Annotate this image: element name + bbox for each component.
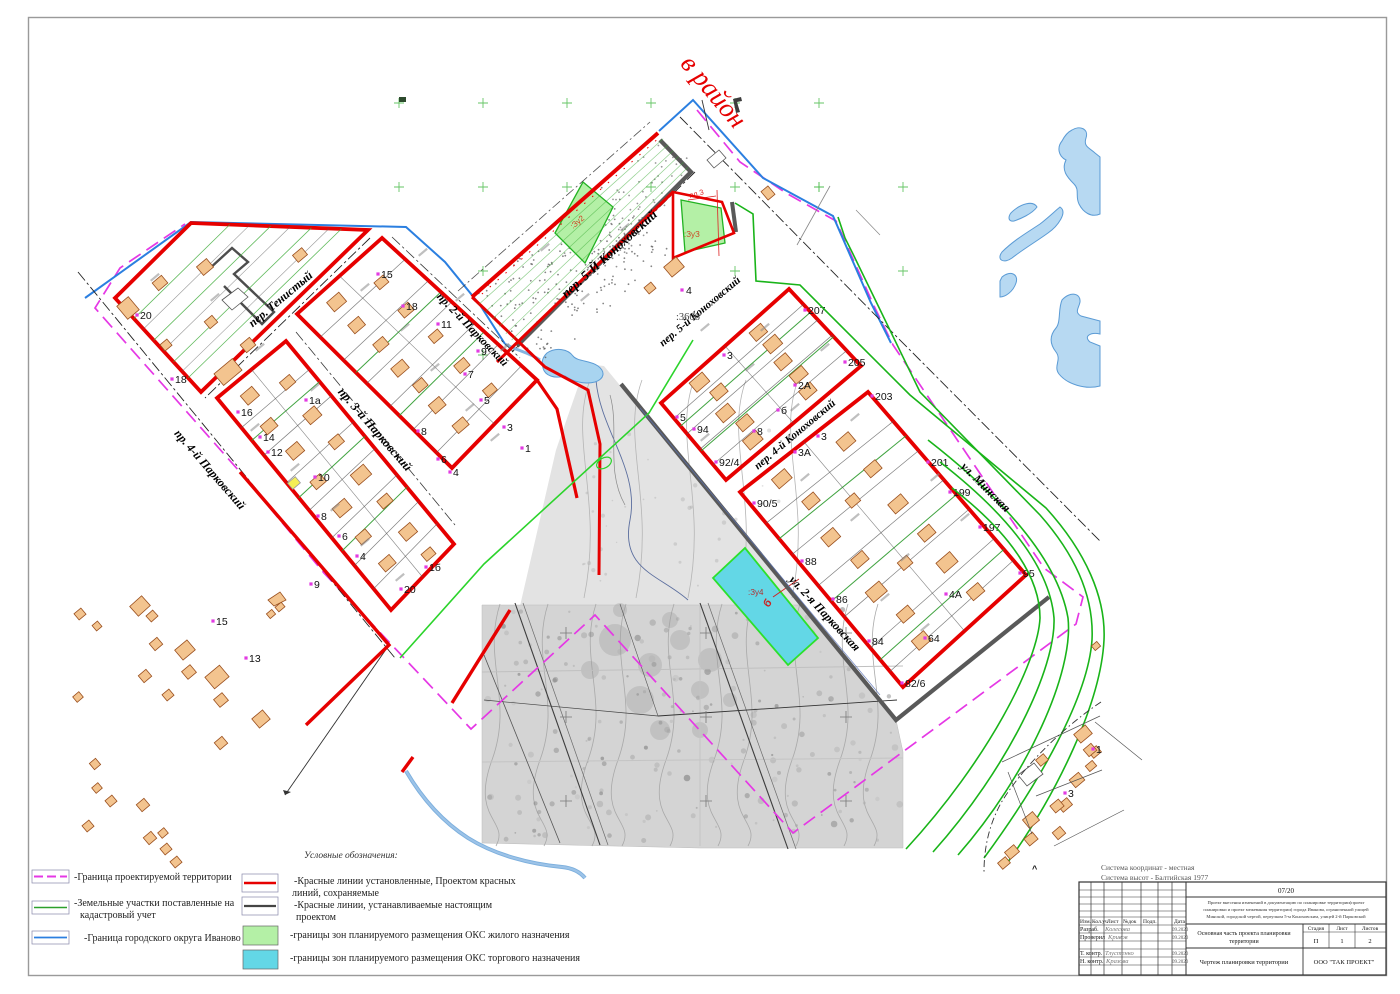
svg-text:8: 8: [321, 511, 327, 523]
svg-text:-Граница проектируемой террито: -Граница проектируемой территории: [74, 872, 232, 883]
svg-text:Стадия: Стадия: [1308, 926, 1325, 932]
svg-text:1а: 1а: [309, 395, 321, 407]
svg-text:Разраб.: Разраб.: [1080, 926, 1099, 933]
svg-text:13: 13: [249, 653, 261, 665]
svg-text:4: 4: [360, 551, 366, 563]
svg-text:Условные обозначения:: Условные обозначения:: [304, 850, 398, 861]
svg-text:Т. контр.: Т. контр.: [1080, 951, 1103, 957]
svg-text:1: 1: [1340, 938, 1343, 945]
svg-text:Чертеж планировки территории: Чертеж планировки территории: [1200, 959, 1289, 966]
svg-text:15: 15: [216, 616, 228, 628]
svg-text:3А: 3А: [798, 447, 811, 459]
svg-text:20: 20: [404, 584, 416, 596]
svg-text:3: 3: [727, 350, 733, 362]
svg-text:-Граница городского округа Ива: -Граница городского округа Иваново: [84, 933, 241, 944]
svg-text:20: 20: [140, 310, 152, 322]
svg-text:Кол.уч: Кол.уч: [1092, 919, 1108, 925]
svg-text:8: 8: [421, 426, 427, 438]
svg-text:88: 88: [805, 556, 817, 568]
svg-text:1: 1: [525, 443, 531, 455]
svg-text:Дата: Дата: [1174, 919, 1186, 925]
svg-text:4: 4: [686, 285, 692, 297]
svg-text:линий, сохраняемые: линий, сохраняемые: [292, 888, 379, 899]
svg-text:90/5: 90/5: [757, 498, 778, 510]
svg-text:09.2020: 09.2020: [1172, 928, 1189, 933]
svg-text:-Красные линии установленные,: -Красные линии установленные, Проектом к…: [294, 876, 516, 887]
svg-text:ООО "ТАК ПРОЕКТ": ООО "ТАК ПРОЕКТ": [1314, 959, 1375, 966]
svg-text:-границы зон планируемого разм: -границы зон планируемого размещения ОКС…: [290, 953, 580, 964]
svg-text:5: 5: [680, 412, 686, 424]
svg-text:Кразова: Кразова: [1105, 958, 1129, 965]
svg-text:11: 11: [441, 319, 452, 331]
svg-text:9: 9: [314, 579, 320, 591]
svg-text:Подп.: Подп.: [1143, 919, 1157, 925]
svg-text:Тлустенко: Тлустенко: [1105, 950, 1134, 957]
svg-text:14: 14: [263, 432, 275, 444]
svg-text:82/6: 82/6: [905, 678, 926, 690]
svg-text:Система координат - местная: Система координат - местная: [1101, 863, 1195, 872]
svg-text:4: 4: [453, 467, 459, 479]
svg-text:Колесова: Колесова: [1104, 926, 1130, 933]
svg-text:6: 6: [441, 454, 447, 466]
svg-text:Лист: Лист: [1336, 926, 1348, 932]
svg-text:-Красные линии, устанавливаемы: -Красные линии, устанавливаемые настоящи…: [294, 900, 493, 911]
svg-text:203: 203: [875, 391, 893, 403]
svg-text:64: 64: [928, 633, 940, 645]
svg-text::3606: :3606: [676, 312, 700, 323]
svg-text:Проект внесения изменений в до: Проект внесения изменений в документацию…: [1207, 900, 1364, 905]
svg-text:205: 205: [848, 357, 866, 369]
svg-text:Н. контр.: Н. контр.: [1080, 959, 1104, 965]
svg-text:207: 207: [808, 305, 826, 317]
svg-text::ЗуЗ: :ЗуЗ: [684, 230, 700, 239]
svg-text:18: 18: [175, 374, 187, 386]
svg-text:Система высот - Балтийская 197: Система высот - Балтийская 1977: [1101, 873, 1208, 882]
svg-text::Зу4: :Зу4: [748, 588, 764, 597]
svg-text:15: 15: [381, 269, 393, 281]
svg-text:1б: 1б: [429, 562, 441, 574]
svg-text:8: 8: [757, 426, 763, 438]
svg-text:-Земельные участки поставленны: -Земельные участки поставленные на: [74, 898, 235, 909]
svg-text:09.2020: 09.2020: [1172, 960, 1189, 965]
svg-text:92/4: 92/4: [719, 457, 740, 469]
svg-text:3: 3: [1068, 788, 1074, 800]
svg-text:84: 84: [872, 636, 884, 648]
svg-text:№док: №док: [1123, 919, 1137, 925]
svg-text:3: 3: [507, 422, 513, 434]
svg-text:территории: территории: [1229, 939, 1259, 945]
svg-text:Листов: Листов: [1362, 926, 1379, 932]
svg-text:-границы зон планируемого разм: -границы зон планируемого размещения ОКС…: [290, 930, 570, 941]
svg-text:Основная часть проекта планиро: Основная часть проекта планировки: [1197, 931, 1291, 937]
svg-text:Лист: Лист: [1107, 919, 1119, 925]
svg-text:2: 2: [1368, 938, 1371, 945]
svg-text:5: 5: [484, 395, 490, 407]
svg-text:3: 3: [821, 431, 827, 443]
svg-text:1: 1: [1096, 744, 1102, 756]
svg-text:16: 16: [241, 407, 253, 419]
svg-text:6: 6: [342, 531, 348, 543]
svg-text:07/20: 07/20: [1278, 887, 1294, 895]
svg-text:кадастровый учет: кадастровый учет: [80, 910, 156, 921]
svg-text:Кривов: Кривов: [1107, 934, 1128, 941]
svg-text:П: П: [1314, 938, 1319, 945]
svg-text:12: 12: [271, 447, 283, 459]
svg-text:4А: 4А: [949, 589, 962, 601]
svg-text:7: 7: [468, 369, 474, 381]
svg-text:199: 199: [953, 487, 971, 499]
svg-text:18: 18: [406, 301, 418, 313]
svg-text:10: 10: [318, 472, 330, 484]
svg-text:б: б: [781, 405, 787, 417]
svg-text:09.2020: 09.2020: [1172, 936, 1189, 941]
svg-text:09.2020: 09.2020: [1172, 952, 1189, 957]
svg-text:Изм.: Изм.: [1080, 919, 1092, 925]
svg-text:2А: 2А: [798, 380, 811, 392]
svg-text:86: 86: [836, 594, 848, 606]
svg-text:проектом: проектом: [296, 912, 337, 923]
svg-text:Проверил: Проверил: [1080, 935, 1105, 941]
svg-text:^: ^: [1032, 864, 1038, 874]
